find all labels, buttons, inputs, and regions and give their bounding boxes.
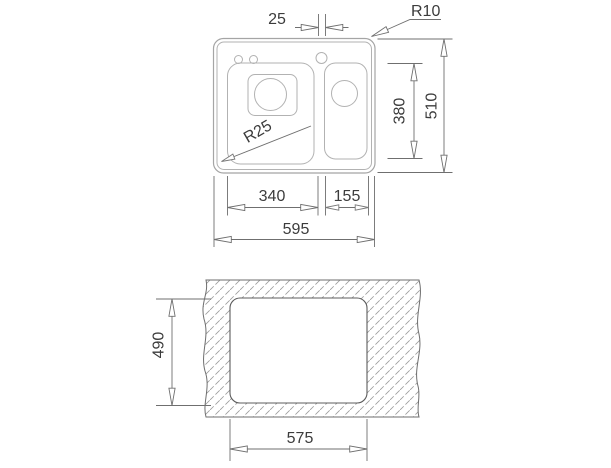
sink-dimension-drawing: 25 R10 R25 510 380 340 155 595 xyxy=(0,0,611,468)
dim-overall-depth: 510 xyxy=(378,39,453,173)
dim-rim-radius: R10 xyxy=(372,3,442,37)
sink-top-view xyxy=(214,39,376,174)
dim-bowl-radius: R25 xyxy=(222,117,312,161)
cutout-opening xyxy=(230,298,367,403)
sink-rim-outer xyxy=(214,39,376,174)
dim-overall-depth-label: 510 xyxy=(424,93,441,120)
faucet-hole-2 xyxy=(250,56,258,64)
dim-bowl-gap-label: 25 xyxy=(268,11,286,28)
faucet-hole-1 xyxy=(235,56,243,64)
dim-bowl-gap-extension-lines xyxy=(319,14,326,36)
left-bowl-base xyxy=(248,75,297,116)
dim-right-bowl-depth: 380 xyxy=(388,64,423,159)
rim-radius-leader xyxy=(372,20,442,37)
left-drain xyxy=(255,79,287,111)
technical-drawing-page: 25 R10 R25 510 380 340 155 595 xyxy=(0,0,611,468)
dim-overall-depth-extension-lines xyxy=(378,39,453,173)
dim-bottom-group: 340 155 595 xyxy=(214,176,375,247)
right-bowl xyxy=(325,63,368,159)
dim-cutout-depth-label: 490 xyxy=(151,332,168,359)
dim-overall-width-label: 595 xyxy=(283,221,310,238)
dim-cutout-width: 575 xyxy=(230,419,367,461)
worktop-cutout-view: 490 575 xyxy=(151,280,421,461)
dim-cutout-width-label: 575 xyxy=(287,430,314,447)
dim-right-bowl-width-label: 155 xyxy=(334,188,361,205)
right-drain xyxy=(332,81,358,107)
dim-bowl-gap: 25 xyxy=(268,11,348,36)
dim-right-bowl-depth-label: 380 xyxy=(392,98,409,125)
faucet-hole-3 xyxy=(316,53,327,64)
rim-radius-label: R10 xyxy=(411,3,440,20)
dim-left-bowl-width-label: 340 xyxy=(259,188,286,205)
dim-cutout-depth: 490 xyxy=(151,299,212,406)
